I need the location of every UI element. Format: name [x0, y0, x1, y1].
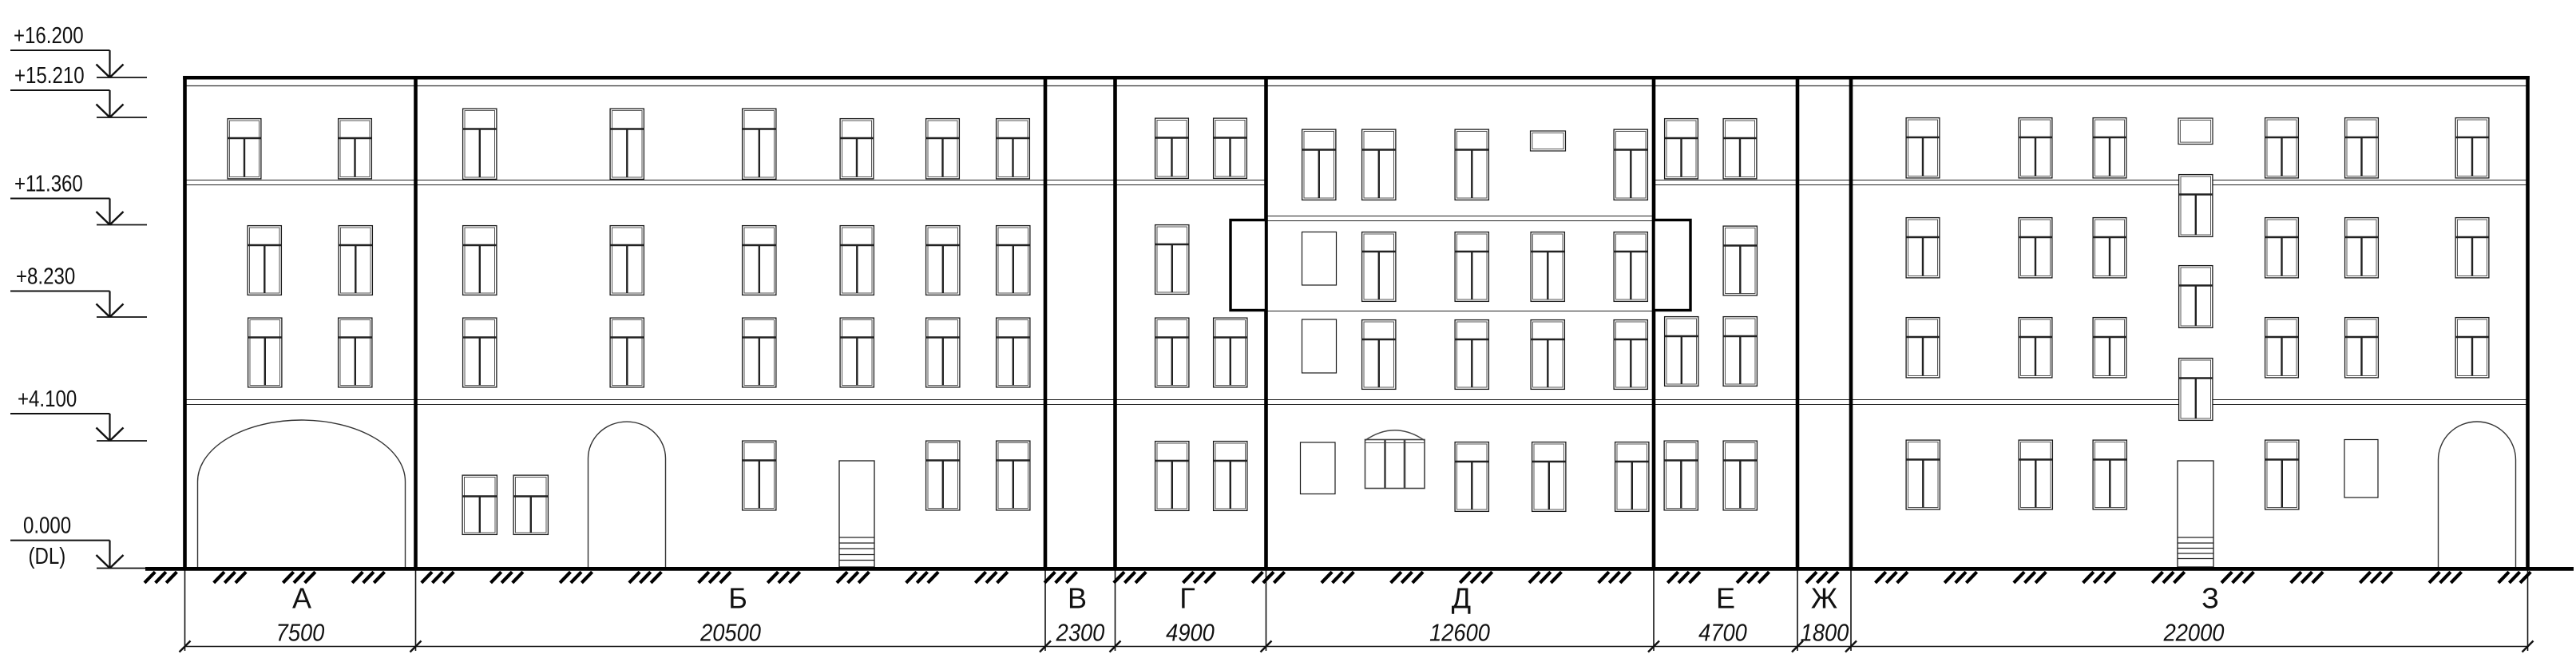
- svg-text:(DL): (DL): [29, 543, 66, 569]
- svg-text:В: В: [1068, 582, 1087, 615]
- svg-text:7500: 7500: [276, 620, 325, 647]
- svg-text:4900: 4900: [1166, 620, 1215, 647]
- svg-text:20500: 20500: [699, 620, 761, 647]
- svg-text:З: З: [2201, 582, 2219, 615]
- svg-text:Е: Е: [1716, 582, 1735, 615]
- svg-text:Д: Д: [1452, 582, 1471, 615]
- svg-text:1800: 1800: [1801, 620, 1849, 647]
- svg-text:4700: 4700: [1698, 620, 1747, 647]
- svg-text:Г: Г: [1179, 582, 1195, 615]
- svg-text:+15.210: +15.210: [14, 62, 85, 89]
- svg-text:+8.230: +8.230: [16, 263, 75, 289]
- svg-text:12600: 12600: [1429, 620, 1490, 647]
- svg-text:0.000: 0.000: [23, 512, 71, 538]
- svg-text:+4.100: +4.100: [18, 386, 77, 412]
- svg-text:2300: 2300: [1056, 620, 1105, 647]
- svg-text:+11.360: +11.360: [14, 170, 83, 196]
- svg-text:Ж: Ж: [1811, 582, 1837, 615]
- svg-text:А: А: [292, 582, 311, 615]
- svg-text:22000: 22000: [2163, 620, 2225, 647]
- svg-text:Б: Б: [728, 582, 747, 615]
- svg-text:+16.200: +16.200: [14, 22, 84, 49]
